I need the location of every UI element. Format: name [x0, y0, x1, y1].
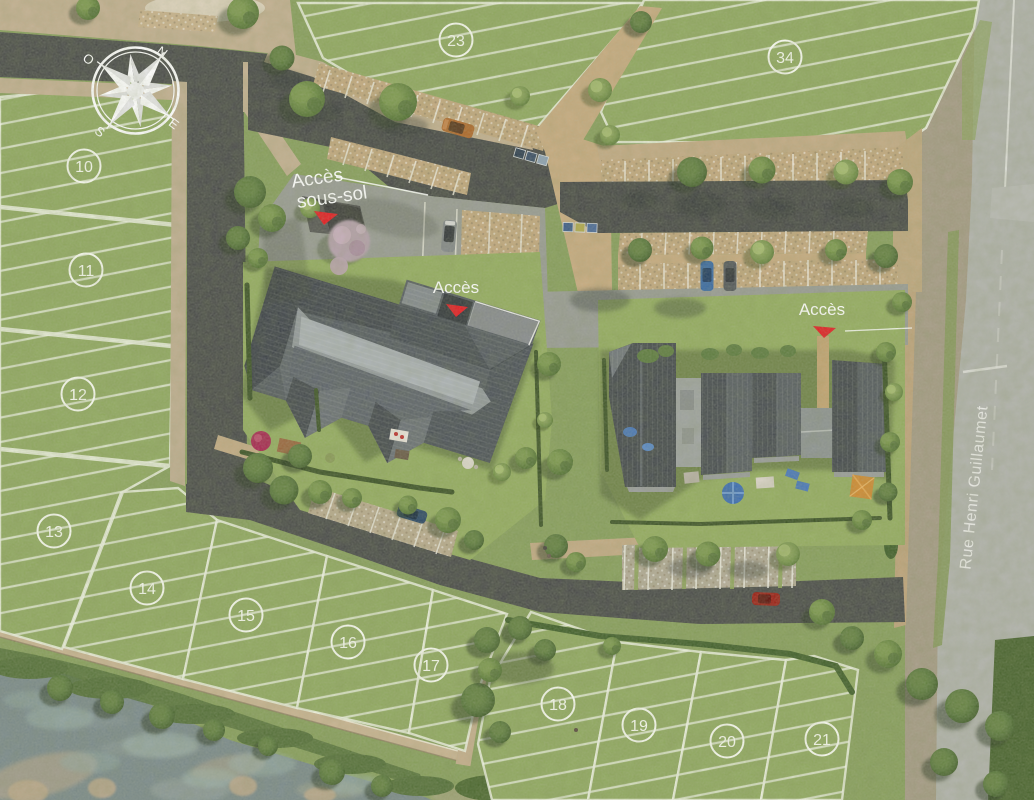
svg-text:34: 34: [776, 50, 794, 67]
svg-text:20: 20: [718, 734, 736, 751]
svg-text:19: 19: [630, 718, 648, 735]
svg-text:11: 11: [78, 263, 95, 280]
svg-text:23: 23: [447, 33, 465, 50]
svg-text:17: 17: [422, 658, 440, 675]
svg-text:21: 21: [813, 732, 831, 749]
svg-text:16: 16: [339, 635, 357, 652]
svg-text:10: 10: [75, 159, 93, 176]
svg-text:Accès: Accès: [799, 300, 845, 319]
svg-text:15: 15: [237, 608, 255, 625]
svg-text:12: 12: [69, 387, 87, 404]
svg-text:14: 14: [138, 581, 156, 598]
svg-text:18: 18: [549, 697, 567, 714]
svg-text:13: 13: [45, 524, 63, 541]
svg-text:Accès: Accès: [433, 278, 479, 297]
